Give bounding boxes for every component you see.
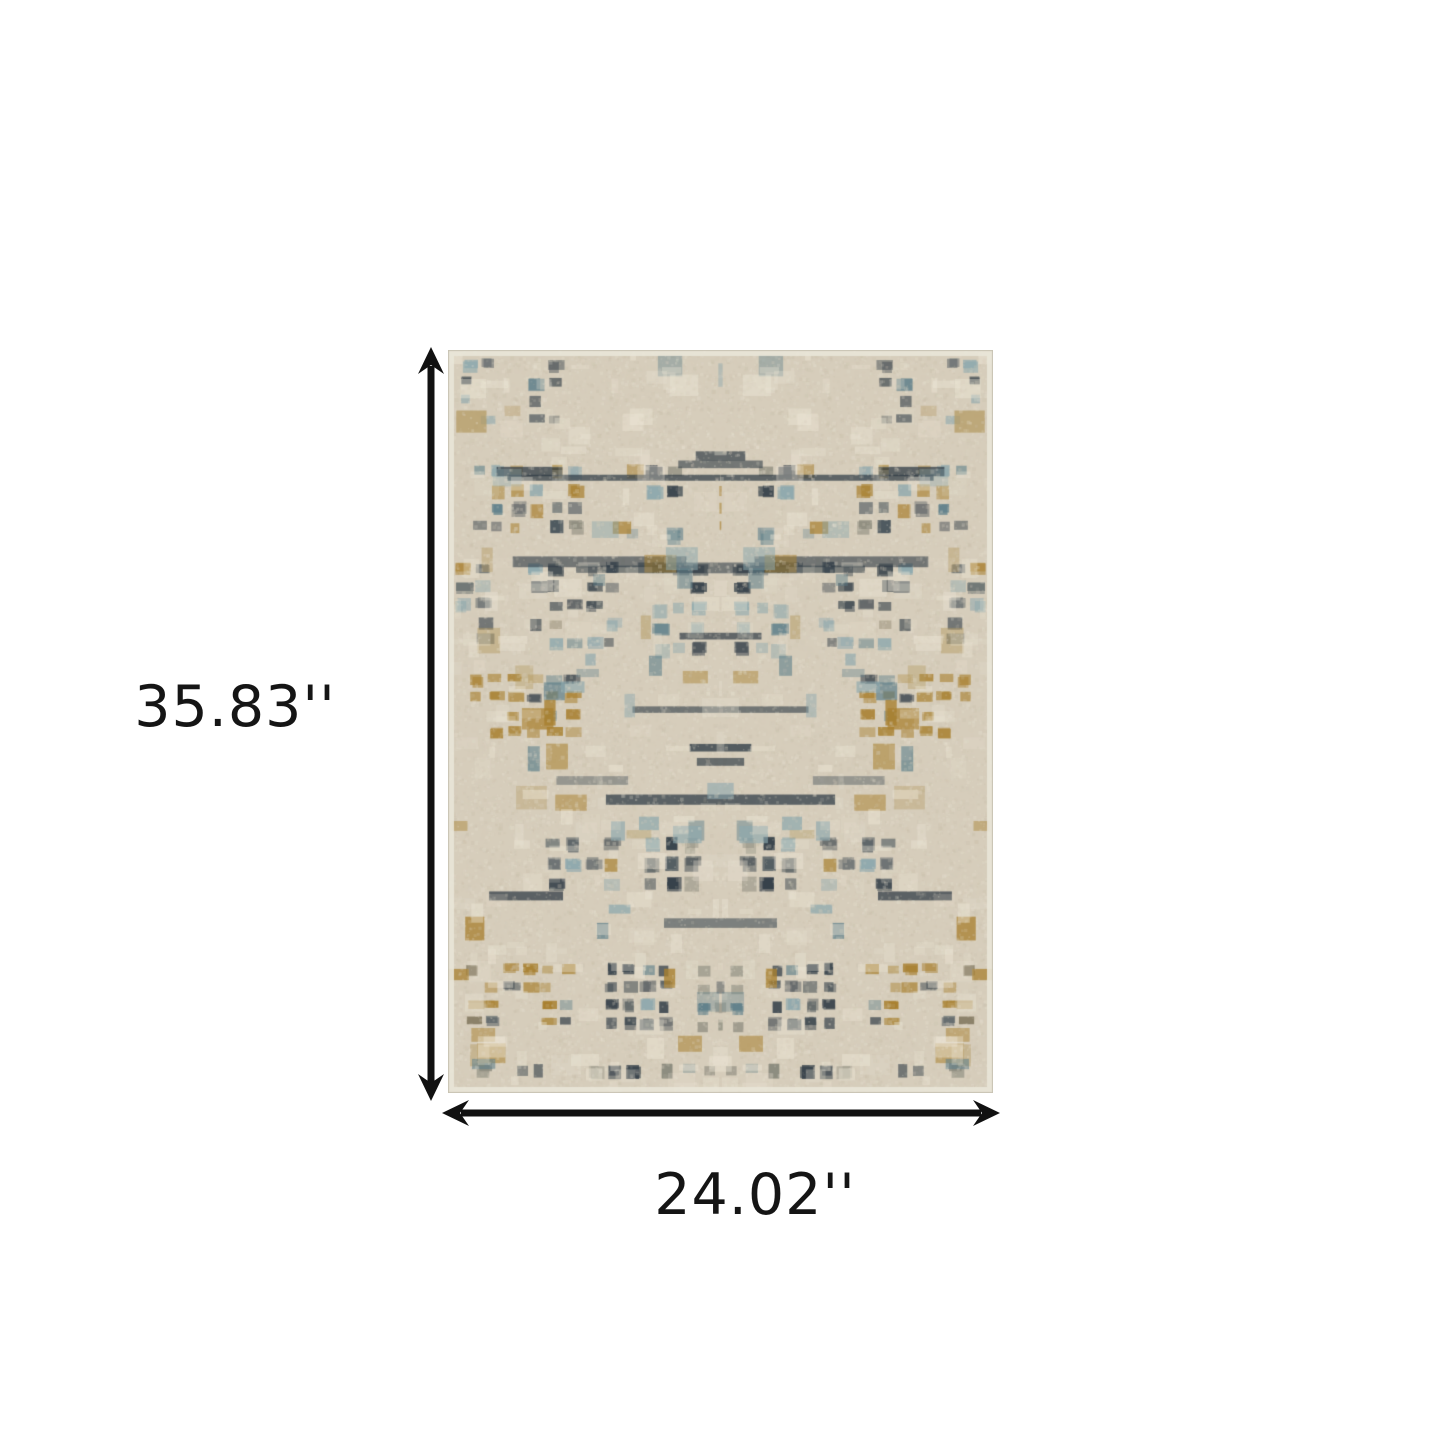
height-dimension-label: 35.83'' — [60, 674, 410, 740]
rug-image — [448, 350, 993, 1093]
width-dimension-arrow — [434, 1092, 1008, 1134]
product-dimension-diagram: 35.83'' 24.02'' — [0, 0, 1445, 1445]
width-dimension-label: 24.02'' — [555, 1162, 955, 1228]
height-dimension-arrow — [410, 342, 452, 1110]
